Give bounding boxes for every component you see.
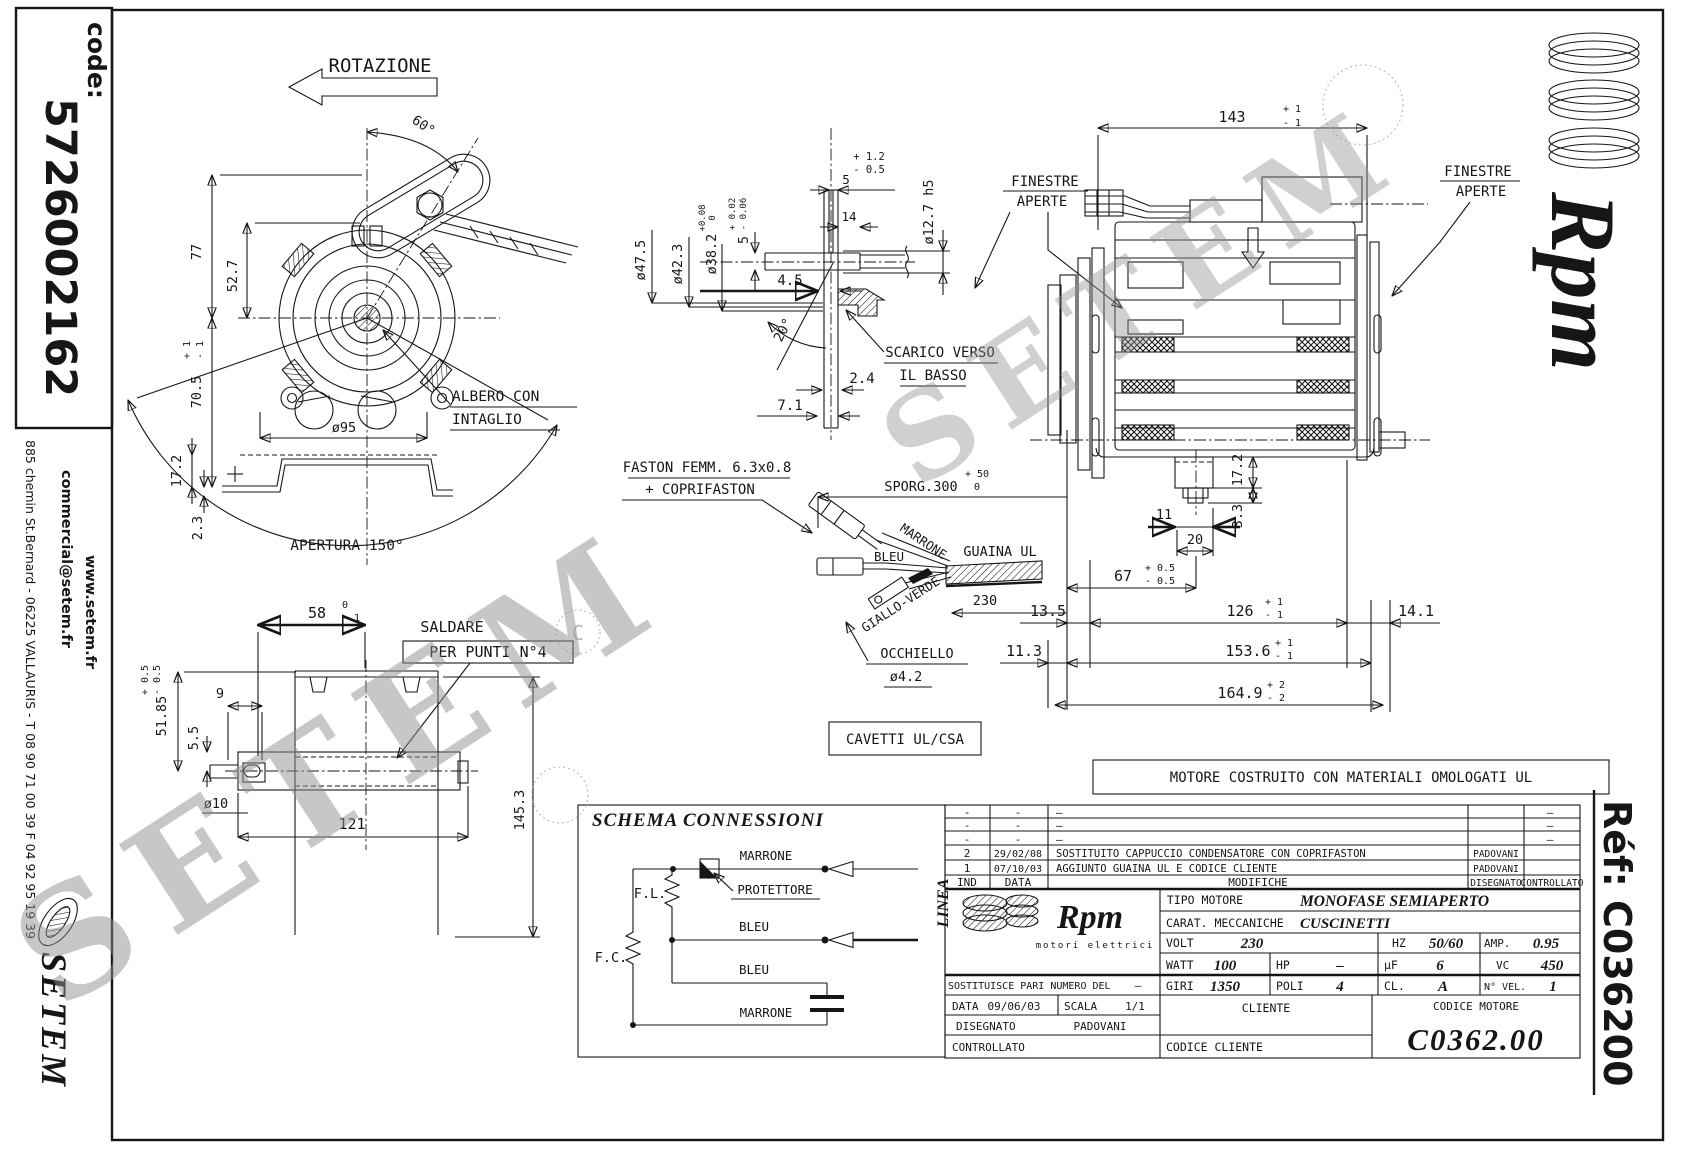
tol-12-minus: - 0.5 xyxy=(853,164,885,176)
cod-mot-label: CODICE MOTORE xyxy=(1433,1000,1519,1013)
volt-value: 230 xyxy=(1240,936,1264,952)
giri-value: 1350 xyxy=(1210,979,1241,995)
dim-7-1: 7.1 xyxy=(777,398,802,414)
titleblock-rpm-sub: motori elettrici xyxy=(1036,941,1155,951)
cod-cli-label: CODICE CLIENTE xyxy=(1166,1040,1263,1054)
carat-label: CARAT. MECCANICHE xyxy=(1166,916,1284,930)
albero-label-2: INTAGLIO xyxy=(452,412,522,428)
uf-value: 6 xyxy=(1436,958,1444,974)
svg-text:AGGIUNTO GUAINA UL E CODICE CL: AGGIUNTO GUAINA UL E CODICE CLIENTE xyxy=(1056,863,1277,875)
dim-5b-tol-plus: + 0.02 xyxy=(728,198,738,231)
poli-value: 4 xyxy=(1335,979,1344,995)
dim-58: 58 xyxy=(308,604,326,622)
svg-text:-: - xyxy=(964,819,971,832)
technical-drawing-sheet: code: 5726002162 885 chemin St.Bernard -… xyxy=(0,0,1683,1153)
revision-row: - - – – xyxy=(964,833,1554,846)
shaft-detail-view: ø47.5 ø42.3 ø38.2 +0.08 0 5 + 0.02 - 0.0… xyxy=(633,128,998,440)
date-label: DATA xyxy=(952,1000,979,1013)
sost-value: – xyxy=(1135,979,1142,992)
schema-connessioni: SCHEMA CONNESSIONI MARRONE PROTETTORE F.… xyxy=(578,805,952,1057)
hdr-data: DATA xyxy=(1005,876,1032,889)
dim-dia47-5: ø47.5 xyxy=(633,240,649,281)
cl-label: CL. xyxy=(1384,979,1405,993)
finestre-left-1: FINESTRE xyxy=(1011,174,1078,190)
svg-text:–: – xyxy=(1547,806,1554,819)
nvel-label: N° VEL. xyxy=(1484,982,1526,993)
svg-text:-: - xyxy=(964,806,971,819)
schema-fc: F.C. xyxy=(595,950,628,966)
dim-17-2-side: 17.2 xyxy=(1230,454,1246,487)
email-text: commercial@setem.fr xyxy=(58,470,74,649)
hdr-modifiche: MODIFICHE xyxy=(1228,876,1288,889)
dim-11-3: 11.3 xyxy=(1006,642,1042,660)
hdr-controllato: CONTROLLATO xyxy=(1521,878,1584,889)
ref-number: Réf: C036200 xyxy=(1595,800,1639,1087)
svg-text:–: – xyxy=(1056,806,1063,819)
watermark-setem-upper: SETEM xyxy=(857,76,1427,514)
dim-dia95: ø95 xyxy=(332,420,356,436)
note-boxes: CAVETTI UL/CSA MOTORE COSTRUITO CON MATE… xyxy=(829,722,1609,794)
vc-value: 450 xyxy=(1540,958,1564,974)
dim-51-85-tol-minus: - 0.5 xyxy=(152,665,163,695)
tipo-label: TIPO MOTORE xyxy=(1167,893,1243,907)
titleblock-rpm-text: Rpm xyxy=(1056,899,1123,936)
watermark-copyright: C xyxy=(572,621,584,645)
hp-value: – xyxy=(1335,958,1344,974)
svg-text:29/02/08: 29/02/08 xyxy=(994,849,1042,860)
schema-bleu-low: BLEU xyxy=(739,962,769,977)
cable-assembly: FASTON FEMM. 6.3x0.8 + COPRIFASTON SPORG… xyxy=(622,460,1067,687)
giri-label: GIRI xyxy=(1166,979,1194,993)
dim-164-9-tol-plus: + 2 xyxy=(1267,680,1285,691)
titleblock-rpm-logo: Rpm motori elettrici xyxy=(963,895,1154,951)
disegnato-value: PADOVANI xyxy=(1074,1020,1127,1033)
watt-value: 100 xyxy=(1214,958,1237,974)
svg-text:–: – xyxy=(1547,833,1554,846)
date-value: 09/06/03 xyxy=(988,1000,1041,1013)
revision-row: 1 07/10/03 AGGIUNTO GUAINA UL E CODICE C… xyxy=(964,862,1519,875)
dim-67-tol-minus: - 0.5 xyxy=(1145,576,1175,587)
hdr-disegnato: DISEGNATO xyxy=(1470,878,1522,889)
svg-text:07/10/03: 07/10/03 xyxy=(994,864,1042,875)
revision-row: - - – – xyxy=(964,806,1554,819)
volt-label: VOLT xyxy=(1166,936,1194,950)
dim-230: 230 xyxy=(973,593,997,609)
capacitor-wires xyxy=(434,214,578,263)
dim-153-6-tol-minus: - 1 xyxy=(1275,651,1293,662)
address-text: 885 chemin St.Bernard - 06225 VALLAURIS … xyxy=(23,440,38,939)
dim-13-5: 13.5 xyxy=(1030,602,1066,620)
dim-11: 11 xyxy=(1156,507,1172,523)
finestre-left-2: APERTE xyxy=(1017,194,1068,210)
carat-value: CUSCINETTI xyxy=(1300,916,1391,932)
svg-text:-: - xyxy=(964,833,971,846)
dim-dia12-7: ø12.7 h5 xyxy=(921,179,937,244)
marrone-wire-label: MARRONE xyxy=(897,520,949,562)
dim-143-tol-minus: - 1 xyxy=(1283,118,1301,129)
scala-value: 1/1 xyxy=(1125,1000,1145,1013)
dim-126: 126 xyxy=(1226,602,1253,620)
dim-5-5: 5.5 xyxy=(186,726,202,750)
left-margin-strip: code: 5726002162 885 chemin St.Bernard -… xyxy=(23,22,111,1089)
dim-164-9-tol-minus: - 2 xyxy=(1267,693,1285,704)
title-block: - - – – - - – – - - – – 2 29/02/08 SOSTI… xyxy=(945,805,1584,1058)
svg-text:SOSTITUITO CAPPUCCIO CONDENSAT: SOSTITUITO CAPPUCCIO CONDENSATORE CON CO… xyxy=(1056,848,1366,860)
sporg-tol-plus: + 50 xyxy=(965,469,989,480)
revision-header: IND DATA MODIFICHE DISEGNATO CONTROLLATO xyxy=(957,876,1584,889)
dim-5: 5 xyxy=(842,172,850,187)
dim-121: 121 xyxy=(338,815,365,833)
dim-2-3: 2.3 xyxy=(190,516,206,540)
dim-5b-tol-minus: - 0.06 xyxy=(739,198,749,231)
dim-2-4: 2.4 xyxy=(849,371,874,387)
dim-14: 14 xyxy=(841,209,856,224)
dim-dia38-2-tol-plus: +0.08 xyxy=(698,204,708,231)
dim-70-5-tol-minus: - 1 xyxy=(195,341,206,359)
svg-text:-: - xyxy=(1015,833,1022,846)
cl-value: A xyxy=(1437,979,1448,995)
schema-bleu-mid: BLEU xyxy=(739,919,769,934)
setem-logo: SETEM xyxy=(31,892,85,1089)
right-margin-strip: Rpm Réf: C036200 xyxy=(1532,33,1639,1087)
dim-17-2: 17.2 xyxy=(169,455,185,488)
code-label: code: xyxy=(82,22,111,99)
hz-label: HZ xyxy=(1392,936,1406,950)
svg-text:-: - xyxy=(1015,819,1022,832)
uf-label: µF xyxy=(1384,958,1398,972)
svg-text:1: 1 xyxy=(964,862,971,875)
revision-row: - - – – xyxy=(964,819,1554,832)
schema-marrone-bot: MARRONE xyxy=(740,1005,793,1020)
dim-58-tol-plus: 0 xyxy=(342,600,348,611)
disegnato-label: DISEGNATO xyxy=(956,1020,1016,1033)
dim-60deg: 60° xyxy=(409,112,438,139)
revision-row: 2 29/02/08 SOSTITUITO CAPPUCCIO CONDENSA… xyxy=(964,847,1519,860)
dim-51-85: 51.85 xyxy=(154,696,170,737)
dim-51-85-tol-plus: + 0.5 xyxy=(140,665,151,695)
svg-text:-: - xyxy=(1015,806,1022,819)
website-text: www.setem.fr xyxy=(82,555,98,670)
tipo-value: MONOFASE SEMIAPERTO xyxy=(1299,893,1489,910)
watt-label: WATT xyxy=(1166,958,1194,972)
occhiello-label-2: ø4.2 xyxy=(890,669,923,685)
cavetti-note: CAVETTI UL/CSA xyxy=(846,732,965,748)
dim-dia42-3: ø42.3 xyxy=(670,244,686,285)
vc-label: VC xyxy=(1496,959,1509,972)
dim-4-5: 4.5 xyxy=(777,273,802,289)
side-view: 143 + 1 - 1 FINESTRE APERTE FINESTRE A xyxy=(975,104,1520,712)
scala-label: SCALA xyxy=(1064,1000,1097,1013)
sost-label: SOSTITUISCE PARI NUMERO DEL xyxy=(948,981,1111,992)
dim-52-7: 52.7 xyxy=(225,260,241,293)
setem-logo-text: SETEM xyxy=(34,952,74,1089)
scarico-label-1: SCARICO VERSO xyxy=(885,345,995,361)
dim-126-tol-minus: - 1 xyxy=(1265,610,1283,621)
amp-value: 0.95 xyxy=(1533,936,1560,952)
dim-9: 9 xyxy=(216,686,224,702)
hp-label: HP xyxy=(1276,958,1290,972)
svg-text:–: – xyxy=(1056,833,1063,846)
dim-153-6: 153.6 xyxy=(1225,642,1270,660)
schema-fl: F.L. xyxy=(634,886,667,902)
scarico-label-2: IL BASSO xyxy=(899,368,966,384)
dim-3-3: 3.3 xyxy=(1230,504,1246,528)
dim-5b: 5 xyxy=(736,236,752,244)
albero-label-1: ALBERO CON xyxy=(452,389,539,405)
svg-text:PADOVANI: PADOVANI xyxy=(1473,864,1519,875)
schema-linea: LINEA xyxy=(935,878,952,928)
hz-value: 50/60 xyxy=(1429,936,1464,952)
nvel-value: 1 xyxy=(1549,979,1557,995)
rpm-logo: Rpm xyxy=(1532,33,1639,371)
finestre-right-1: FINESTRE xyxy=(1444,164,1511,180)
dim-153-6-tol-plus: + 1 xyxy=(1275,638,1293,649)
dim-58-tol-minus: - 1 xyxy=(342,613,360,624)
svg-text:–: – xyxy=(1056,819,1063,832)
dim-143: 143 xyxy=(1218,108,1245,126)
motor-side-body xyxy=(1030,177,1430,478)
dim-126-tol-plus: + 1 xyxy=(1265,597,1283,608)
dim-145-3: 145.3 xyxy=(512,790,528,831)
faston-connector-upper xyxy=(808,492,884,554)
front-view: ROTAZIONE 60° 77 52.7 70.5 + 1 - xyxy=(128,55,578,565)
dim-164-9: 164.9 xyxy=(1217,684,1262,702)
mounting-bracket xyxy=(222,455,453,496)
controllato-label: CONTROLLATO xyxy=(952,1041,1025,1054)
dim-14-1: 14.1 xyxy=(1398,602,1434,620)
saldare-label-1: SALDARE xyxy=(420,618,483,636)
hdr-ind: IND xyxy=(957,876,977,889)
svg-text:–: – xyxy=(1547,819,1554,832)
dim-70-5-tol-plus: + 1 xyxy=(182,341,193,359)
cod-mot-value: C0362.00 xyxy=(1407,1022,1544,1057)
dim-20: 20 xyxy=(1187,532,1203,548)
dim-77: 77 xyxy=(189,244,205,260)
cliente-label: CLIENTE xyxy=(1242,1001,1291,1015)
dim-67: 67 xyxy=(1114,567,1132,585)
condenser-bracket xyxy=(1175,450,1213,515)
dim-dia38-2-tol-minus: 0 xyxy=(708,215,718,220)
tol-12-plus: + 1.2 xyxy=(853,151,885,163)
poli-label: POLI xyxy=(1276,979,1304,993)
dim-dia38-2: ø38.2 xyxy=(704,234,720,275)
dim-67-tol-plus: + 0.5 xyxy=(1145,563,1175,574)
bleu-wire-label: BLEU xyxy=(874,549,904,564)
occhiello-label-1: OCCHIELLO xyxy=(880,646,953,662)
schema-marrone-top: MARRONE xyxy=(740,848,793,863)
guaina-label: GUAINA UL xyxy=(963,544,1036,560)
rotazione-label: ROTAZIONE xyxy=(329,55,432,77)
code-value: 5726002162 xyxy=(35,98,85,397)
schema-title: SCHEMA CONNESSIONI xyxy=(592,810,824,831)
base-view: 58 0 - 1 SALDARE PER PUNTI N°4 51.85 + 0… xyxy=(140,600,573,937)
schema-protettore: PROTETTORE xyxy=(737,882,812,897)
faston-label-1: FASTON FEMM. 6.3x0.8 xyxy=(623,460,792,476)
dim-70-5: 70.5 xyxy=(189,376,205,409)
rpm-logo-text: Rpm xyxy=(1532,191,1634,371)
dim-dia10: ø10 xyxy=(204,796,228,812)
faston-label-2: + COPRIFASTON xyxy=(645,482,755,498)
omologati-note: MOTORE COSTRUITO CON MATERIALI OMOLOGATI… xyxy=(1170,770,1532,786)
svg-text:2: 2 xyxy=(964,847,971,860)
saldare-label-2: PER PUNTI N°4 xyxy=(429,643,546,661)
amp-label: AMP. xyxy=(1484,937,1511,950)
finestre-right-2: APERTE xyxy=(1456,184,1507,200)
sheet-frame xyxy=(16,8,1663,1140)
drawing-canvas: code: 5726002162 885 chemin St.Bernard -… xyxy=(0,0,1683,1153)
sporg-tol-minus: 0 xyxy=(974,482,980,493)
sporg-label: SPORG.300 xyxy=(884,479,957,495)
dim-143-tol-plus: + 1 xyxy=(1283,104,1301,115)
svg-text:PADOVANI: PADOVANI xyxy=(1473,849,1519,860)
apertura-label: APERTURA 150° xyxy=(290,538,404,554)
